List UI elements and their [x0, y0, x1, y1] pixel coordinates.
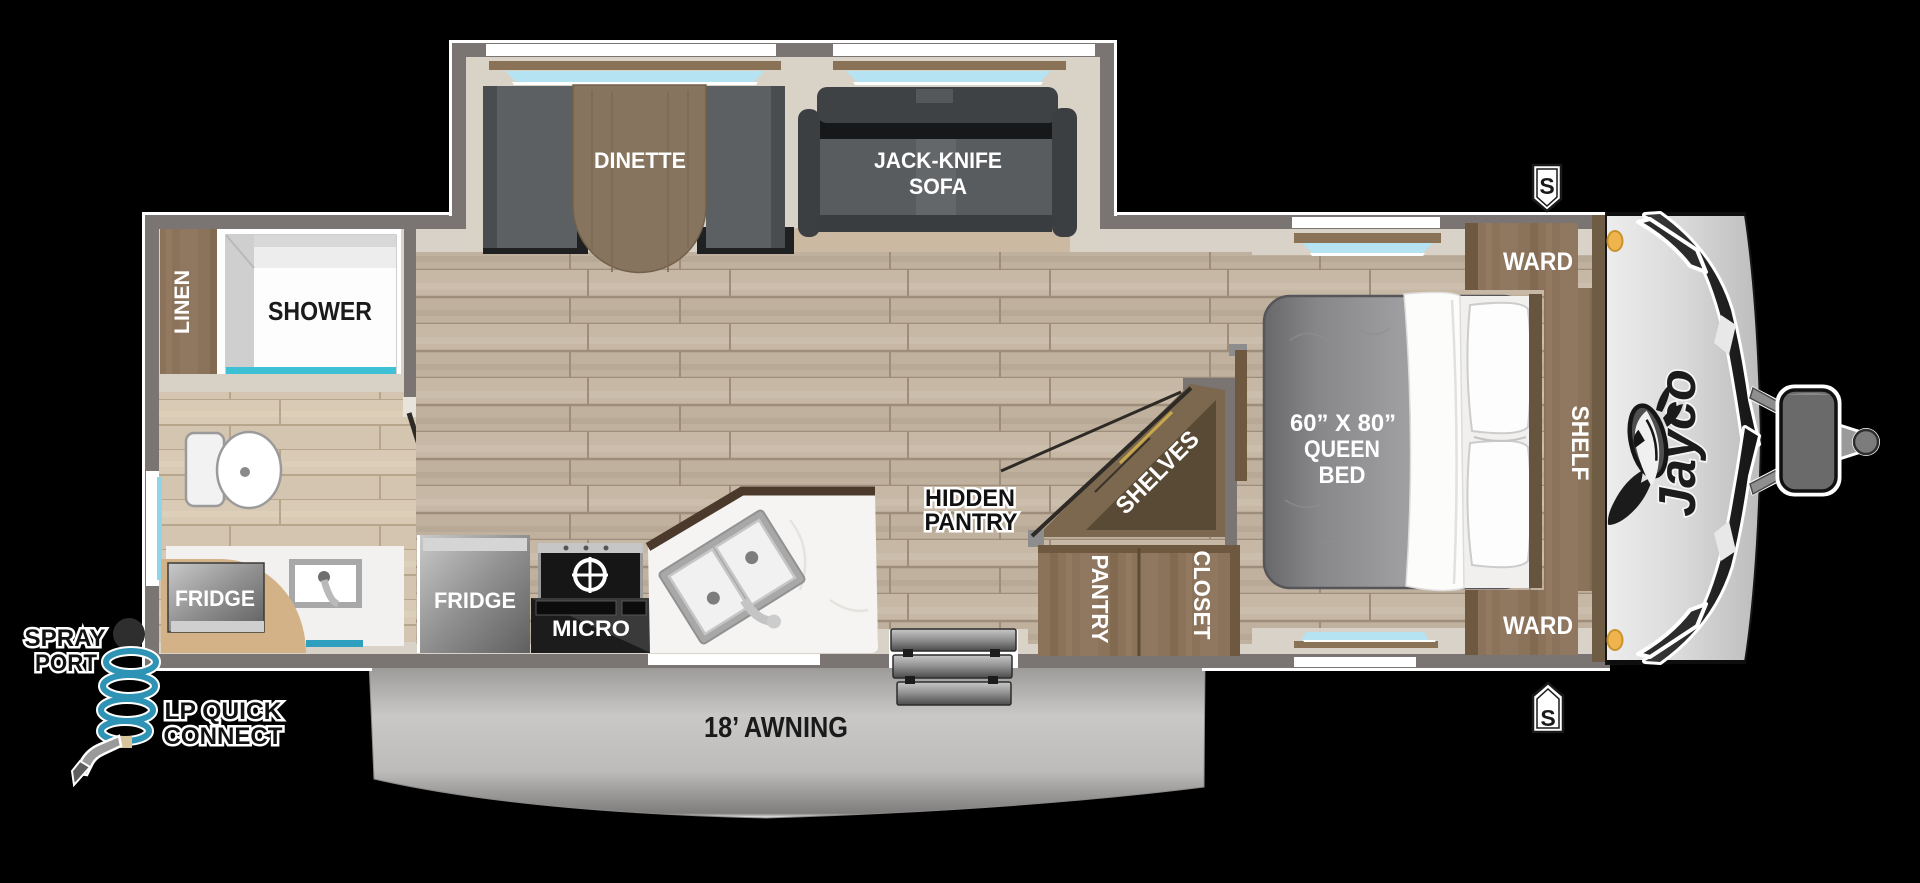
svg-text:SHOWER: SHOWER	[268, 296, 372, 326]
svg-text:CONNECT: CONNECT	[164, 723, 283, 750]
svg-text:PANTRY: PANTRY	[925, 509, 1018, 536]
svg-text:FRIDGE: FRIDGE	[434, 588, 516, 613]
svg-text:WARD: WARD	[1503, 612, 1573, 640]
svg-text:S: S	[1540, 705, 1555, 731]
svg-text:S: S	[1539, 173, 1554, 199]
svg-text:QUEEN: QUEEN	[1304, 436, 1380, 463]
svg-text:WARD: WARD	[1503, 248, 1573, 276]
svg-text:PANTRY: PANTRY	[1087, 555, 1113, 644]
svg-text:MICRO: MICRO	[552, 616, 630, 641]
svg-text:HIDDEN: HIDDEN	[925, 485, 1015, 512]
svg-text:FRIDGE: FRIDGE	[175, 586, 255, 611]
svg-text:DINETTE: DINETTE	[594, 148, 686, 173]
svg-text:LP QUICK: LP QUICK	[165, 698, 283, 725]
svg-text:CLOSET: CLOSET	[1189, 551, 1215, 640]
svg-text:JACK-KNIFE: JACK-KNIFE	[874, 148, 1002, 173]
svg-text:BED: BED	[1319, 462, 1366, 489]
svg-text:18’ AWNING: 18’ AWNING	[704, 712, 848, 744]
svg-text:SOFA: SOFA	[909, 174, 967, 199]
svg-text:60” X 80”: 60” X 80”	[1290, 410, 1396, 437]
svg-text:LINEN: LINEN	[171, 270, 194, 334]
svg-text:SHELF: SHELF	[1566, 406, 1593, 481]
svg-text:SPRAY: SPRAY	[25, 625, 106, 652]
svg-text:PORT: PORT	[35, 650, 97, 677]
